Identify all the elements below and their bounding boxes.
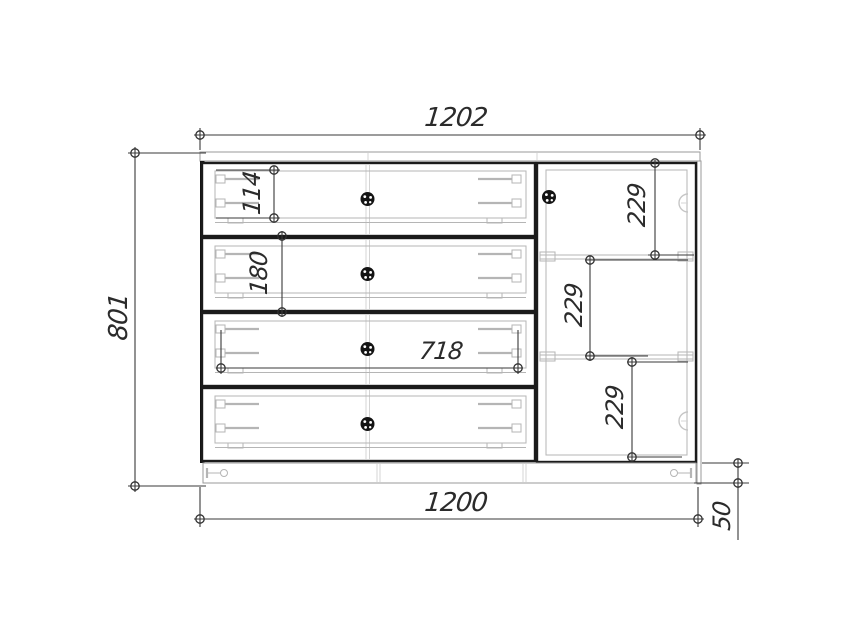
plinth-strip: [203, 463, 696, 483]
technical-drawing: 1202 801 114 180 718: [0, 0, 856, 642]
dim-left-height: 801: [104, 147, 206, 492]
cabinet-right-side: [697, 161, 701, 484]
cabinet-top-panel: [200, 152, 700, 161]
dim-drawer2-front-height-label: 180: [245, 250, 273, 296]
dim-plinth-height-label: 50: [708, 500, 736, 532]
dim-plinth-height: 50: [694, 459, 749, 540]
door-knob-icon: [542, 190, 556, 204]
dim-door-section-bottom-label: 229: [601, 384, 629, 430]
drawing-canvas: 1202 801 114 180 718: [0, 0, 856, 642]
dim-bottom-width: 1200: [194, 487, 704, 527]
dim-top-width-label: 1202: [423, 103, 488, 133]
dim-bottom-width-label: 1200: [423, 488, 489, 518]
plinth: [203, 463, 696, 483]
drawer-3: [202, 313, 535, 386]
dim-left-height-label: 801: [104, 292, 134, 342]
dim-drawer-inner-width-label: 718: [418, 337, 464, 365]
dim-door-section-middle-label: 229: [560, 282, 588, 328]
dim-top-width: 1202: [194, 103, 706, 150]
drawer-4: [202, 388, 535, 461]
dim-door-section-top-label: 229: [623, 182, 651, 228]
dim-drawer1-inner-height-label: 114: [238, 170, 266, 216]
